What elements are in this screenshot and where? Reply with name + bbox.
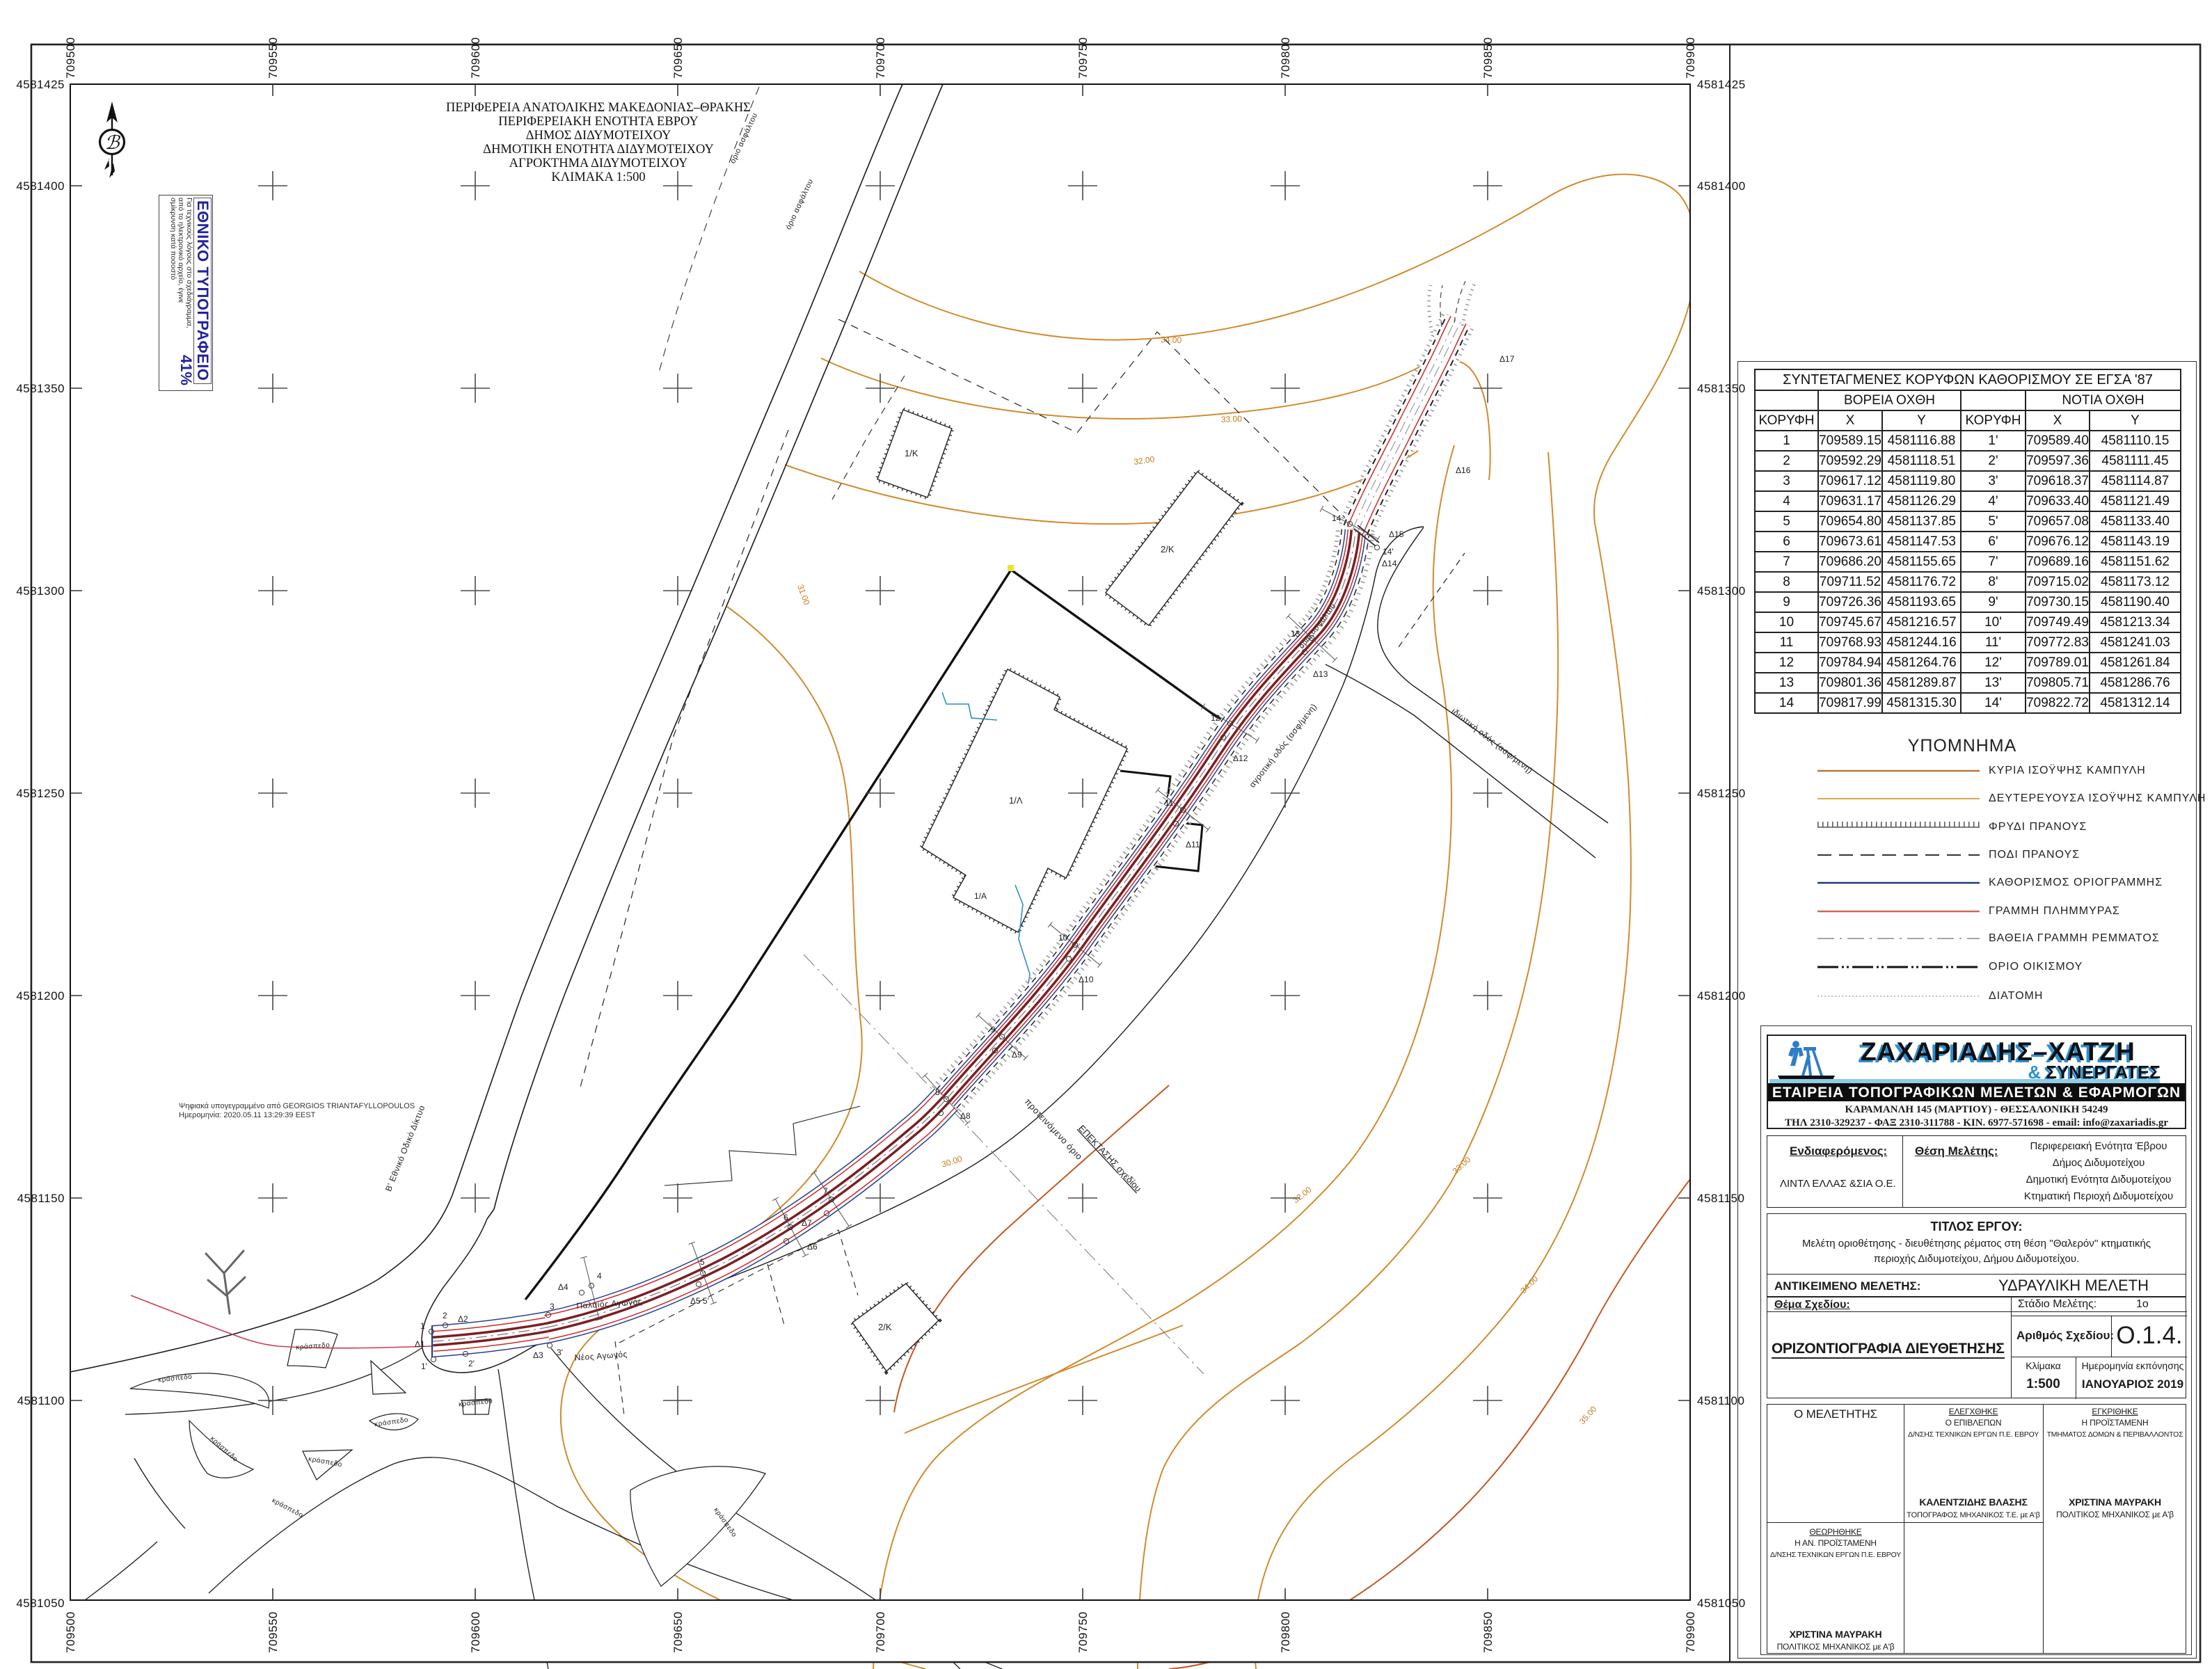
svg-text:3: 3	[550, 1302, 555, 1311]
svg-text:10: 10	[1058, 933, 1068, 943]
svg-text:Δ17: Δ17	[1499, 354, 1515, 364]
svg-text:1: 1	[420, 1321, 425, 1331]
svg-text:4581350: 4581350	[16, 382, 65, 395]
svg-text:1': 1'	[421, 1361, 427, 1371]
svg-text:2': 2'	[468, 1359, 475, 1368]
svg-text:Δ5 5': Δ5 5'	[690, 1296, 709, 1306]
svg-text:4581100: 4581100	[17, 1394, 65, 1407]
svg-text:709900: 709900	[1684, 37, 1697, 79]
svg-text:709600: 709600	[469, 1611, 482, 1653]
svg-text:2/K: 2/K	[878, 1322, 892, 1332]
svg-text:Δ16: Δ16	[1456, 465, 1471, 475]
svg-text:709700: 709700	[874, 37, 887, 79]
svg-text:κράσπεδο: κράσπεδο	[271, 1496, 305, 1520]
svg-text:4: 4	[597, 1271, 602, 1281]
svg-text:1/K: 1/K	[905, 448, 918, 458]
svg-text:709800: 709800	[1279, 37, 1292, 79]
svg-text:Δ15: Δ15	[1389, 529, 1404, 539]
svg-text:2/K: 2/K	[1161, 544, 1175, 554]
svg-text:32.00: 32.00	[1291, 1185, 1314, 1206]
svg-text:709800: 709800	[1279, 1611, 1292, 1653]
svg-text:33.00: 33.00	[1451, 1155, 1473, 1176]
svg-text:709700: 709700	[874, 1611, 887, 1653]
svg-text:Δ9: Δ9	[1012, 1050, 1022, 1060]
svg-text:32.00: 32.00	[1133, 454, 1155, 467]
svg-text:Δ14: Δ14	[1382, 559, 1397, 568]
svg-text:4581250: 4581250	[16, 787, 65, 800]
svg-text:Δ6: Δ6	[807, 1242, 818, 1252]
svg-text:14: 14	[1332, 513, 1342, 523]
svg-text:709500: 709500	[64, 37, 77, 79]
svg-text:709750: 709750	[1076, 1611, 1090, 1653]
svg-text:709600: 709600	[469, 37, 482, 79]
svg-text:6: 6	[783, 1213, 788, 1222]
svg-text:4581300: 4581300	[16, 584, 65, 598]
svg-text:709850: 709850	[1481, 37, 1495, 79]
svg-text:4581425: 4581425	[1697, 78, 1746, 91]
svg-text:προτεινόμενο όριο: προτεινόμενο όριο	[1023, 1096, 1085, 1162]
svg-text:Δ4: Δ4	[558, 1282, 568, 1292]
svg-text:όριο ασφάλτου: όριο ασφάλτου	[784, 177, 815, 231]
svg-text:7: 7	[823, 1186, 828, 1196]
svg-text:Νέος Αγωγός: Νέος Αγωγός	[574, 1349, 628, 1362]
svg-text:ℬ: ℬ	[104, 132, 120, 153]
svg-text:33.00: 33.00	[1221, 414, 1243, 424]
svg-text:709650: 709650	[671, 1611, 685, 1653]
svg-text:35.00: 35.00	[1577, 1404, 1599, 1426]
svg-text:4581400: 4581400	[16, 179, 65, 193]
svg-text:13: 13	[1291, 629, 1300, 639]
svg-text:3': 3'	[557, 1348, 563, 1357]
svg-text:Δ12: Δ12	[1233, 753, 1248, 763]
svg-text:Δ2: Δ2	[458, 1314, 468, 1324]
svg-text:Δ8: Δ8	[960, 1111, 971, 1121]
svg-text:1/Λ: 1/Λ	[1009, 795, 1023, 806]
svg-text:709500: 709500	[64, 1611, 77, 1653]
svg-text:30.00: 30.00	[941, 1153, 964, 1169]
svg-text:12: 12	[1211, 713, 1220, 723]
svg-text:709850: 709850	[1481, 1611, 1495, 1653]
svg-text:14': 14'	[1383, 547, 1394, 557]
svg-text:11: 11	[1165, 798, 1174, 808]
svg-text:Δ13: Δ13	[1313, 669, 1328, 679]
svg-text:4581150: 4581150	[17, 1192, 65, 1205]
svg-text:34.00: 34.00	[1518, 1274, 1540, 1295]
svg-text:4581425: 4581425	[16, 78, 65, 91]
svg-text:709550: 709550	[266, 1611, 280, 1653]
svg-text:ιδιωτική οδός (ασφ/μενη): ιδιωτική οδός (ασφ/μενη)	[1449, 706, 1534, 776]
svg-text:Δ7: Δ7	[802, 1218, 812, 1228]
svg-text:709750: 709750	[1076, 37, 1090, 79]
svg-text:709650: 709650	[671, 37, 685, 79]
svg-text:1/Α: 1/Α	[974, 891, 987, 901]
svg-text:4581400: 4581400	[1697, 179, 1746, 193]
svg-text:31.00: 31.00	[795, 583, 812, 606]
svg-text:709900: 709900	[1684, 1611, 1697, 1653]
svg-text:709550: 709550	[266, 37, 280, 79]
svg-text:8: 8	[935, 1087, 940, 1097]
svg-text:4581200: 4581200	[16, 989, 65, 1003]
svg-text:Δ3: Δ3	[533, 1350, 543, 1360]
svg-text:Δ1: Δ1	[415, 1339, 425, 1349]
svg-text:Δ10: Δ10	[1079, 975, 1094, 984]
svg-text:2: 2	[443, 1311, 447, 1320]
svg-text:9: 9	[991, 1025, 996, 1035]
svg-text:4581050: 4581050	[16, 1597, 65, 1610]
svg-text:34.00: 34.00	[1161, 335, 1182, 345]
svg-text:5: 5	[700, 1257, 705, 1267]
svg-text:Δ11: Δ11	[1186, 840, 1200, 849]
